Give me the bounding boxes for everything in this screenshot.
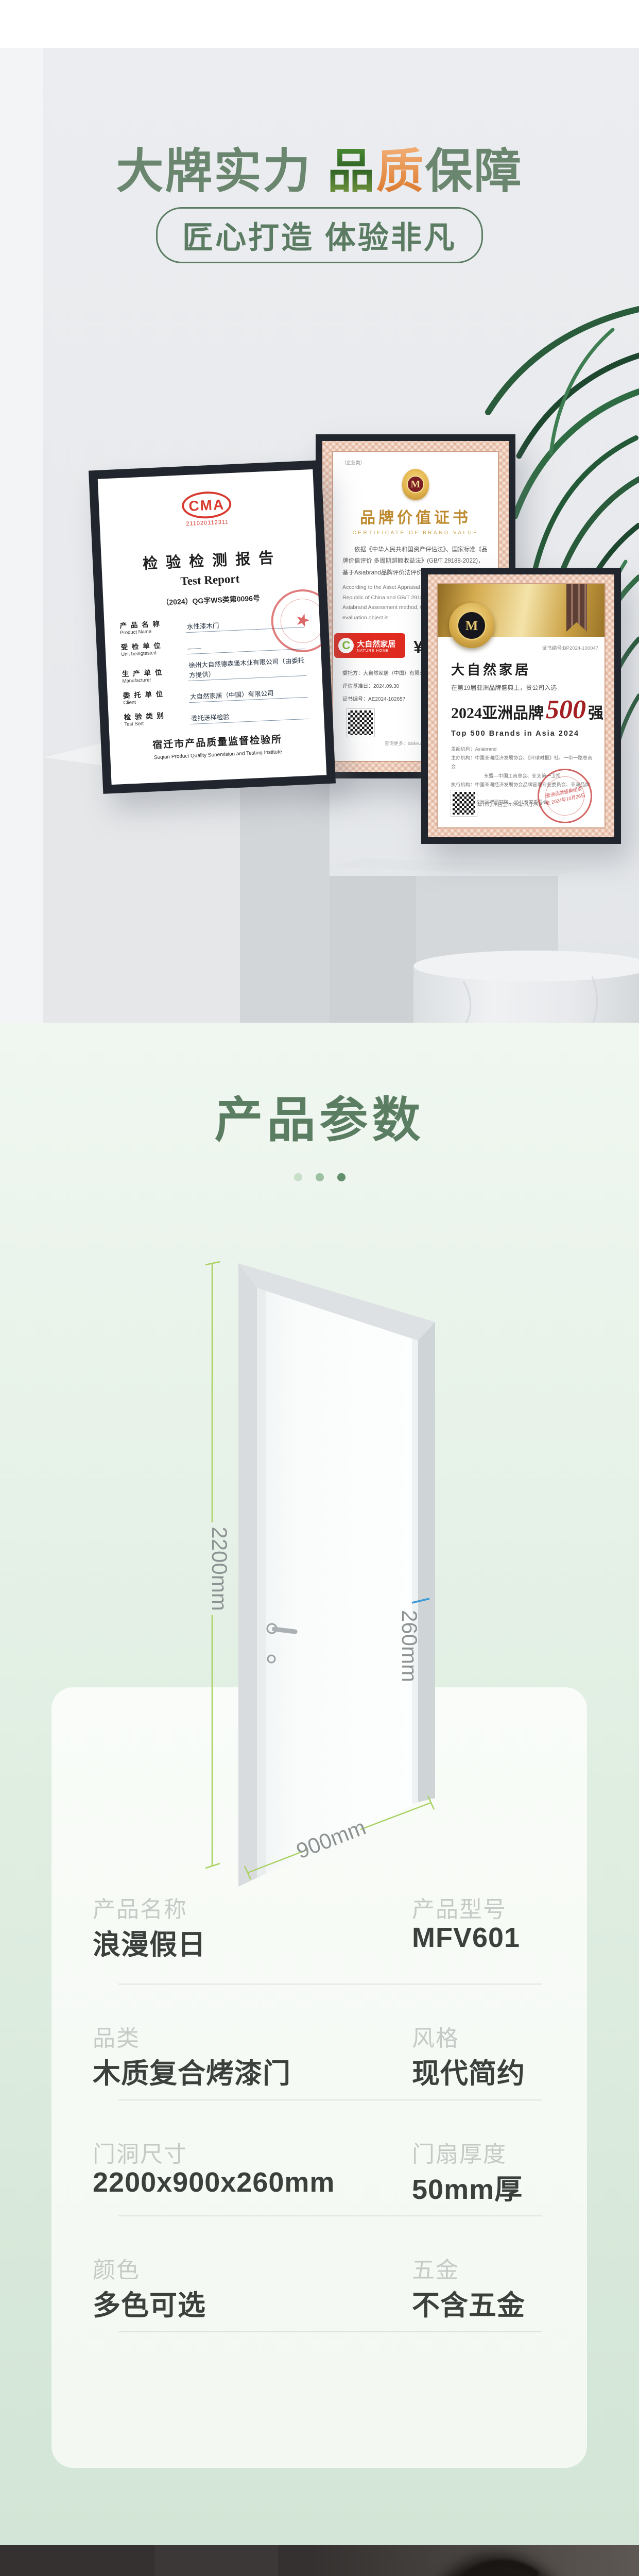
- decorative-dots: [0, 1173, 639, 1184]
- report-field-row: 委 托 单 位Client 大自然家居（中国）有限公司: [123, 682, 307, 706]
- dim-height-label: 2200mm: [208, 1527, 232, 1611]
- param-label: 门扇厚度: [412, 2136, 507, 2168]
- hero-title-tail: 保障: [425, 145, 523, 198]
- honor-award-title-en: Top 500 Brands in Asia 2024: [451, 730, 579, 738]
- divider: [118, 1984, 542, 1985]
- brand-cert-category: ·（企业类）·: [342, 459, 489, 466]
- param-value: 多色可选: [93, 2282, 206, 2323]
- nature-home-logo-cn: 大自然家居: [357, 638, 395, 649]
- honor-cert-number: 证书编号:BP2024-100047: [542, 644, 598, 651]
- hero-title-accent-orange: 质: [376, 145, 425, 198]
- hero-subtitle: 匠心打造 体验非凡: [156, 207, 483, 263]
- test-report-certificate: CMA 211020112311 检 验 检 测 报 告 Test Report…: [89, 460, 336, 794]
- honor-award-title: 2024亚洲品牌 500 强: [451, 697, 603, 723]
- honor-org-line: 发起机构：Asiabrand: [451, 745, 594, 754]
- honor-certificate: M 证书编号:BP2024-100047 大自然家居 在第19届亚洲品牌盛典上，…: [421, 568, 621, 844]
- divider: [118, 2099, 542, 2100]
- dot-icon: [294, 1173, 302, 1181]
- param-label: 品类: [93, 2020, 140, 2053]
- report-field-row: 生 产 单 位Manufacturer 徐州大自然德森堡木业有限公司（由委托方提…: [122, 655, 306, 684]
- param-value: MFV601: [412, 1922, 520, 1954]
- divider: [118, 2215, 542, 2216]
- param-label: 风格: [412, 2020, 459, 2053]
- param-label: 门洞尺寸: [93, 2136, 187, 2168]
- param-label: 五金: [412, 2251, 459, 2284]
- customer-service-photo: [309, 2545, 639, 2576]
- product-params-section: 产品参数 产品名称 浪漫假日 产品型号 MFV601 品类 木质复合烤漆门 风格…: [0, 1023, 639, 2545]
- product-detail-page: 大牌实力品质保障 匠心打造 体验非凡 ·（企业类）· M 品牌价值证书 CERT…: [0, 0, 639, 2576]
- hero-subtitle-wrap: 匠心打造 体验非凡: [0, 207, 639, 263]
- divider: [118, 2331, 542, 2332]
- param-value: 2200x900x260mm: [93, 2166, 335, 2198]
- ribbon-icon: [566, 584, 587, 632]
- param-value: 不含五金: [412, 2282, 525, 2323]
- medal-icon: M: [402, 469, 429, 500]
- honor-brand-name: 大自然家居: [451, 659, 531, 679]
- door-dimension-diagram: 2200mm 260mm 900mm: [0, 1234, 639, 1904]
- dot-icon: [316, 1173, 324, 1181]
- medal-icon: M: [449, 603, 494, 648]
- param-value: 木质复合烤漆门: [93, 2050, 291, 2091]
- hero-title-accent-green: 品: [327, 145, 376, 198]
- hero-title-main: 大牌实力: [116, 145, 312, 198]
- brand-cert-subtitle: CERTIFICATE OF BRAND VALUE: [342, 530, 489, 536]
- cma-logo: CMA 211020112311: [179, 490, 234, 528]
- param-value: 浪漫假日: [93, 1922, 206, 1962]
- nature-home-logo-c-icon: C: [338, 638, 354, 653]
- certificate-showcase-section: 大牌实力品质保障 匠心打造 体验非凡 ·（企业类）· M 品牌价值证书 CERT…: [0, 0, 639, 1023]
- honor-award-number: 500: [546, 697, 586, 723]
- honor-intro-line: 在第19届亚洲品牌盛典上，贵公司入选: [451, 683, 557, 692]
- dim-depth-label: 260mm: [398, 1610, 422, 1682]
- param-label: 颜色: [93, 2251, 140, 2284]
- nature-home-logo: C 大自然家居 NATURE HOME: [334, 633, 405, 658]
- params-section-title: 产品参数: [0, 1081, 639, 1151]
- report-field-row: 检 验 类 别Test Sort 委托送样检验: [124, 703, 308, 727]
- hero-title: 大牌实力品质保障: [0, 133, 639, 201]
- dot-icon: [337, 1173, 346, 1181]
- brand-cert-title: 品牌价值证书: [342, 505, 489, 528]
- nature-home-logo-en: NATURE HOME: [357, 649, 395, 653]
- param-value: 50mm厚: [412, 2166, 523, 2207]
- qr-code-icon: [347, 709, 374, 737]
- param-value: 现代简约: [412, 2050, 525, 2091]
- service-section: 金保姆服务 全国1000+实体门店支持 咨询下单 ›: [0, 2545, 639, 2576]
- honor-org-line: 主办机构：中国亚洲经济发展协会、《环球时报》社、一带一路总商会: [451, 754, 594, 771]
- qr-code-icon: [451, 790, 477, 816]
